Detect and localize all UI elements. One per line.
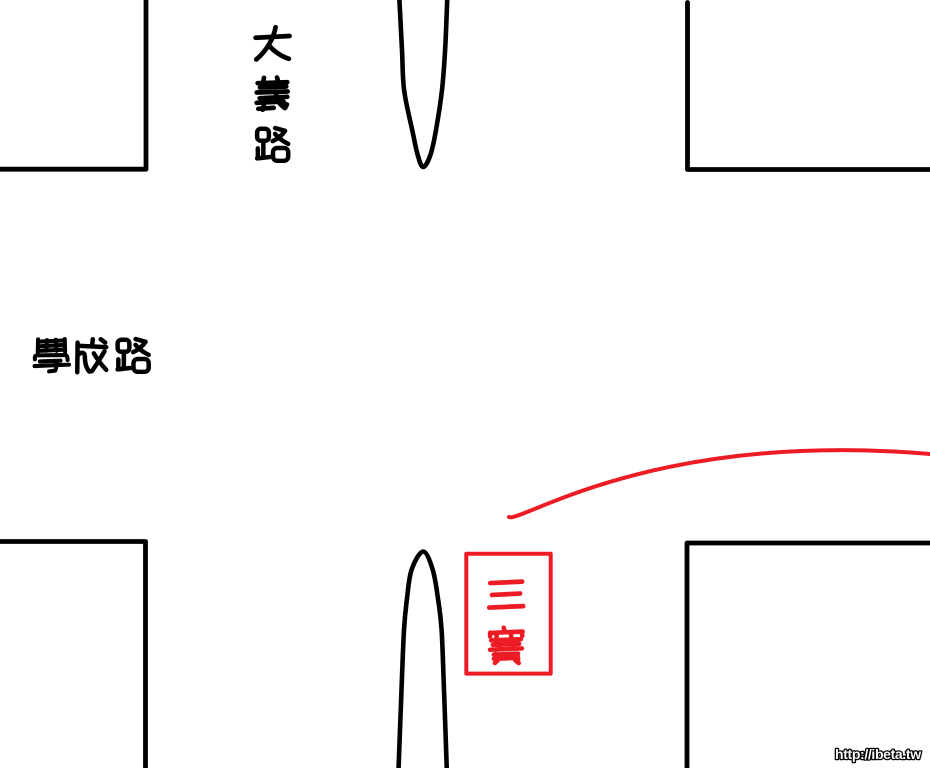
svg-text:http://ibeta.tw: http://ibeta.tw	[835, 746, 921, 762]
